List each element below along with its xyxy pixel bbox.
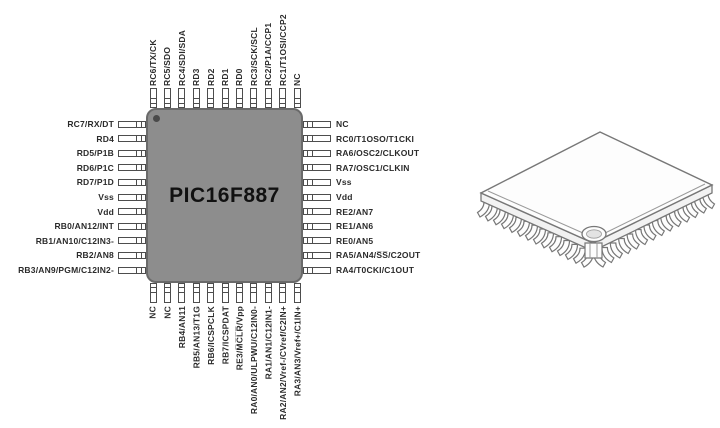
pin-label: RD5/P1B: [77, 148, 114, 158]
pin-pad: [222, 88, 229, 108]
pin-pad: [303, 267, 331, 274]
pin-pad: [164, 283, 171, 303]
pin-pad: [303, 223, 331, 230]
pin-pad: [303, 179, 331, 186]
pin-pad: [303, 150, 331, 157]
pin-label: RB5/AN13/T1G: [191, 306, 201, 368]
pin-label: RB6/ICSPCLK: [206, 306, 216, 365]
pin-label: RC3/SCK/SCL: [249, 27, 259, 86]
package-corner-tab: [585, 243, 602, 258]
chip-body: PIC16F887: [146, 108, 303, 283]
pin-pad: [150, 283, 157, 303]
pin-pad: [303, 164, 331, 171]
pin-label: RB2/AN8: [76, 250, 114, 260]
pin-label: RA5/AN4/S̅S̅/C2OUT: [336, 250, 420, 260]
pin-label: RD7/P1D: [77, 177, 114, 187]
pin-pad: [178, 283, 185, 303]
pin-pad: [294, 283, 301, 303]
pin-label: RA2/AN2/Vref-/CVref/C2IN+: [278, 306, 288, 420]
pin-pad: [178, 88, 185, 108]
pin-pad: [222, 283, 229, 303]
pin-label: RE1/AN6: [336, 221, 373, 231]
pin-label: RC1/T1OSI/CCP2: [278, 14, 288, 86]
pin-pad: [118, 194, 146, 201]
pin-pad: [207, 283, 214, 303]
pin-label: RC6/TX/CK: [148, 39, 158, 86]
pin-label: RD0: [234, 68, 244, 86]
pin-label: RD3: [191, 68, 201, 86]
pin-label: RD1: [220, 68, 230, 86]
pin-label: Vdd: [97, 207, 114, 217]
pin-label: RE0/AN5: [336, 236, 373, 246]
pin-pad: [118, 237, 146, 244]
pin-label: RB4/AN11: [177, 306, 187, 348]
pin-label: NC: [148, 306, 158, 319]
pin-pad: [118, 121, 146, 128]
pin-label: RC7/RX/DT: [67, 119, 114, 129]
pin-label: RC5/SDO: [162, 47, 172, 86]
pin-pad: [303, 194, 331, 201]
pin-label: RE2/AN7: [336, 207, 373, 217]
pin-pad: [303, 121, 331, 128]
pin-pad: [303, 237, 331, 244]
pin-pad: [207, 88, 214, 108]
pin-pad: [250, 283, 257, 303]
pin-pad: [279, 88, 286, 108]
pin-label: RB7/ICSPDAT: [220, 306, 230, 364]
pin-label: RD2: [206, 68, 216, 86]
pin-label: RB1/AN10/C12IN3-: [36, 236, 114, 246]
pin-pad: [265, 283, 272, 303]
pin-label: RA4/T0CKI/C1OUT: [336, 265, 414, 275]
pin-pad: [303, 208, 331, 215]
pin-label: Vdd: [336, 192, 353, 202]
chip-part-number: PIC16F887: [148, 184, 301, 208]
pin-label: RB3/AN9/PGM/C12IN2-: [18, 265, 114, 275]
pin-label: RD4: [96, 134, 114, 144]
pin-pad: [118, 267, 146, 274]
pin-label: NC: [162, 306, 172, 319]
pin1-indicator-dot: [153, 115, 160, 122]
pin-pad: [150, 88, 157, 108]
pin-label: RB0/AN12/INT: [54, 221, 114, 231]
pin1-dimple: [582, 227, 606, 242]
pin-label: RC0/T1OSO/T1CKI: [336, 134, 414, 144]
pin-label: RC2/P1A/CCP1: [263, 23, 273, 86]
pin-pad: [250, 88, 257, 108]
pin-label: RA7/OSC1/CLKIN: [336, 163, 410, 173]
pin-pad: [118, 135, 146, 142]
pin-label: RA1/AN1/C12IN1-: [263, 306, 273, 379]
pin-pad: [193, 283, 200, 303]
pin-pad: [164, 88, 171, 108]
pin-pad: [118, 208, 146, 215]
pin-label: RD6/P1C: [77, 163, 114, 173]
pin-label: NC: [292, 73, 302, 86]
pin-label: RC4/SDI/SDA: [177, 30, 187, 86]
pin-pad: [118, 164, 146, 171]
pin-label: Vss: [336, 177, 352, 187]
pinout-figure: RC6/TX/CKNCRC5/SDONCRC4/SDI/SDARB4/AN11R…: [0, 0, 720, 428]
pin-pad: [303, 252, 331, 259]
pin-pad: [118, 179, 146, 186]
pin-pad: [265, 88, 272, 108]
pin-pad: [118, 252, 146, 259]
pin-label: RA3/AN3/Vref+/C1IN+: [292, 306, 302, 396]
pin-label: RE3/M̅C̅L̅R̅/Vpp: [234, 306, 244, 370]
pin-pad: [236, 283, 243, 303]
pin-pad: [193, 88, 200, 108]
pin-label: Vss: [98, 192, 114, 202]
pin-pad: [294, 88, 301, 108]
pin-pad: [118, 223, 146, 230]
pin-pad: [236, 88, 243, 108]
pin-pad: [303, 135, 331, 142]
qfp-3d-illustration: [468, 112, 718, 290]
pin-label: RA6/OSC2/CLKOUT: [336, 148, 419, 158]
pin-label: NC: [336, 119, 349, 129]
pin-pad: [279, 283, 286, 303]
pin-label: RA0/AN0/ULPWU/C12IN0-: [249, 306, 259, 414]
pin-pad: [118, 150, 146, 157]
